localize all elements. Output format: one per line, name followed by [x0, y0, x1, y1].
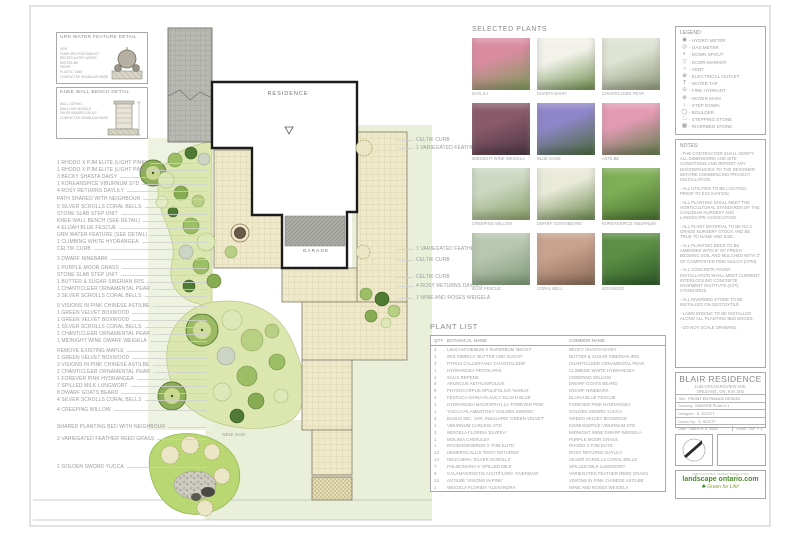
- leader-line: [111, 259, 207, 260]
- logo-tagline: ♣ Green for Life!: [676, 484, 765, 490]
- plant-card: BOXWOOD: [602, 233, 660, 292]
- plant-card: CORAL BELL: [537, 233, 595, 292]
- garage-floor: [285, 216, 345, 246]
- leader-line: [137, 379, 207, 380]
- leader-line: [131, 386, 207, 387]
- legend-item: T - WATER TAP: [680, 80, 761, 87]
- plan-callout: 1 PURPLE MOOR GRASS: [57, 265, 207, 271]
- leader-line: [150, 163, 207, 164]
- plant-list-header: QTY BOTANICAL NAME COMMON NAME: [431, 336, 665, 346]
- table-row: 9 PHYSOCARPUS OPULIFOLIUS 'NANUS' DWARF …: [431, 387, 665, 394]
- north-arrow-box: [675, 434, 713, 466]
- garage-label: GARAGE: [288, 249, 344, 254]
- note-item: - ALL PLANTING BEDS TO BE AMENDED WITH 8…: [680, 243, 761, 264]
- legend-symbol-icon: ◯: [680, 109, 689, 116]
- drawing-sheet: URN WATER FEATURE DETAIL URNPUMP AND FOU…: [0, 0, 800, 533]
- legend-panel: LEGEND: ◉ - HYDRO METER ◎ - GAS METER ◐ …: [675, 26, 766, 135]
- leader-line: [153, 334, 207, 335]
- legend-symbol-icon: ◎: [680, 44, 689, 51]
- legend-symbol-icon: ▽: [680, 59, 689, 66]
- legend-item: ⊙ - FIRE HYDRANT: [680, 87, 761, 94]
- leader-line: [120, 177, 207, 178]
- column-header-common: COMMON NAME: [569, 338, 662, 343]
- legend-item: ◐ - DOWN SPOUT: [680, 51, 761, 58]
- leader-line: [157, 439, 207, 440]
- plan-callout: CELTIK CURB: [57, 246, 207, 252]
- legend-item: ◉ - HYDRO METER: [680, 37, 761, 44]
- selected-plants-grid: DAYLILY SHASTA DAISY CHANTICLEER PEAR MI…: [472, 38, 666, 292]
- leader-line: [121, 275, 207, 276]
- leader-line: [398, 148, 413, 149]
- plan-callout: 3 VARIEGATED FEATHER REED GRASS: [57, 436, 207, 442]
- plant-photo: [537, 168, 595, 220]
- table-row: 1 VIBURNUM CARLESII STD KOREANSPICE VIBU…: [431, 422, 665, 429]
- legend-symbol-icon: ↓: [680, 102, 689, 109]
- plan-callout: 1 GREEN VELVET BOXWOOD: [57, 317, 207, 323]
- plant-photo-label: ASTILBE: [602, 155, 660, 162]
- date-label: Date:: [678, 426, 687, 431]
- scale-label: Scale:: [736, 426, 747, 431]
- project-name: BLAIR RESIDENCE: [676, 373, 765, 384]
- notes-title: NOTES:: [680, 143, 761, 149]
- plan-callout: 8 DWARF GOATS BEARD: [57, 390, 207, 396]
- plant-photo-label: KOREANSPICE VIBURNUM: [602, 220, 660, 227]
- plan-callout: 4 ROSY RETURNS DAYLILY: [57, 188, 207, 194]
- leader-line: [132, 313, 207, 314]
- plan-callout: 1 GREEN VELVET BOXWOOD: [57, 310, 207, 316]
- plan-callout: 3 BECKY SHASTA DAISY: [57, 174, 207, 180]
- legend-symbol-icon: □: [680, 116, 689, 123]
- note-item: - ALL UTILITIES TO BE LOCATED PRIOR TO E…: [680, 186, 761, 196]
- leader-line: [398, 277, 413, 278]
- plan-callout: 1 CHANTICLEER ORNAMENTAL PEAR: [57, 369, 207, 375]
- plan-callout: 3 DWARF NINEBARK: [57, 256, 207, 262]
- plan-callout: 7 SPILLED MILK LUNGWORT: [57, 383, 207, 389]
- table-row: 1 MOLINIA CAERULEA PURPLE MOOR GRASS: [431, 436, 665, 443]
- leader-line: [114, 410, 207, 411]
- legend-symbol-icon: ⊕: [680, 73, 689, 80]
- title-block-rows: Title: FRONT ENTRANCE DESIGN Drawing: MA…: [676, 394, 765, 424]
- table-row: 14 HEUCHERA 'SILVER SCROLLS' SILVER SCRO…: [431, 456, 665, 463]
- plan-callout: URN WATER FEATURE (SEE DETAIL): [57, 232, 207, 238]
- table-row: 3 WEIGELA FLORIDA 'ELVERA' MIDNIGHT WINE…: [431, 429, 665, 436]
- table-row: 1 HYDRANGEA MACROPHYLLA 'FOREVER PINK' F…: [431, 401, 665, 408]
- leader-line: [153, 306, 208, 307]
- legend-items: ◉ - HYDRO METER ◎ - GAS METER ◐ - DOWN S…: [680, 37, 761, 130]
- plant-photo: [472, 233, 530, 285]
- plan-callout: 1 WINE AND ROSES WEIGELA: [398, 295, 523, 301]
- note-item: - LAWN EDGING TO BE INSTALLED ALONG ALL …: [680, 311, 761, 321]
- table-row: 1 HYDRANGEA PETIOLARIS CLIMBING WHITE HY…: [431, 367, 665, 374]
- leader-line: [145, 296, 207, 297]
- plan-callout: KNEE WALL BENCH (SEE DETAIL): [57, 218, 207, 224]
- leader-line: [145, 327, 207, 328]
- notes-panel: NOTES: - THE CONTRACTOR SHALL VERIFY ALL…: [675, 139, 766, 368]
- legend-item: ○ - VENT: [680, 66, 761, 73]
- notes-list: - THE CONTRACTOR SHALL VERIFY ALL DIMENS…: [680, 151, 761, 330]
- plant-card: DAYLILY: [472, 38, 530, 97]
- plant-photo-label: BLUE FESCUE: [472, 285, 530, 292]
- leader-line: [398, 260, 413, 261]
- plan-callout: 1 FOREVER PINK HYDRANGEA: [57, 376, 207, 382]
- plan-callout: 1 SILVER SCROLLS CORAL BELLS: [57, 324, 207, 330]
- plant-photo-label: DAYLILY: [472, 90, 530, 97]
- scale-value: 1/4" = 1': [749, 426, 763, 431]
- leader-line: [150, 341, 207, 342]
- note-item: - ALL RIVERBED STONE TO BE INSTALLED ON …: [680, 297, 761, 307]
- plant-photo-label: CREEPING WILLOW: [472, 220, 530, 227]
- legend-symbol-icon: ⊗: [680, 95, 689, 102]
- leader-line: [121, 393, 207, 394]
- table-row: 1 IRIS SIBIRICA 'BUTTER AND SUGAR' BUTTE…: [431, 353, 665, 360]
- leader-line: [153, 372, 207, 373]
- legend-item: ⊕ - ELECTRICAL OUTLET: [680, 73, 761, 80]
- plant-photo-label: CORAL BELL: [537, 285, 595, 292]
- title-block-row: Title: FRONT ENTRANCE DESIGN: [676, 394, 765, 402]
- new-sod-label: NEW SOD: [222, 433, 245, 438]
- legend-item: ⊗ - WATER MAIN: [680, 95, 761, 102]
- table-row: 3 PYRUS CALLERYANA 'CHANTICLEER' CHANTIC…: [431, 360, 665, 367]
- note-item: - ALL PLANT MATERIAL TO BE NO.1 GRADE NU…: [680, 224, 761, 240]
- plant-list-rows: 3 LEUCANTHEMUM X SUPERBUM 'BECKY' BECKY …: [431, 346, 665, 491]
- leader-line: [398, 298, 413, 299]
- legend-symbol-icon: ○: [680, 66, 689, 73]
- plant-card: MIDNIGHT WINE WEIGELA: [472, 103, 530, 162]
- mosaic-paver-pad: [312, 477, 352, 500]
- table-row: 4 SALIX REPENS CREEPING WILLOW: [431, 374, 665, 381]
- legend-symbol-icon: ⊙: [680, 87, 689, 94]
- leader-line: [153, 365, 208, 366]
- plant-card: KOREANSPICE VIBURNUM: [602, 168, 660, 227]
- leader-line: [142, 184, 207, 185]
- plant-photo: [472, 168, 530, 220]
- leader-line: [145, 400, 207, 401]
- plant-photo-label: BLUE SAGE: [537, 155, 595, 162]
- table-row: 8 ARUNCUS AETHUSIFOLIUS DWARF GOATS BEAR…: [431, 380, 665, 387]
- plan-callout: 1 CHANTICLEER ORNAMENTAL PEAR: [57, 331, 207, 337]
- note-item: - THE CONTRACTOR SHALL VERIFY ALL DIMENS…: [680, 151, 761, 182]
- plan-callout: SHARED PLANTING BED WITH NEIGHBOUR: [57, 424, 207, 430]
- plant-photo: [537, 38, 595, 90]
- plan-callout: 1 KOREANSPICE VIBURNUM STD: [57, 181, 207, 187]
- plant-card: BLUE FESCUE: [472, 233, 530, 292]
- residence-label: RESIDENCE: [258, 91, 318, 97]
- leader-line: [143, 221, 207, 222]
- leader-line: [127, 191, 207, 192]
- plan-callout: 3 VISIONS IN PINK CHINESE ASTILBE: [57, 362, 207, 368]
- plant-photo: [602, 38, 660, 90]
- plant-card: BLUE SAGE: [537, 103, 595, 162]
- note-item: - ALL PLANTING SHALL MEET THE HORTICULTU…: [680, 200, 761, 221]
- table-row: 3 BUXUS MIC. VAR. INSULARIS 'GREEN VELVE…: [431, 415, 665, 422]
- leader-line: [150, 235, 207, 236]
- tree-icon: ♣: [702, 484, 706, 490]
- plant-card: SHASTA DAISY: [537, 38, 595, 97]
- plant-photo-label: CHANTICLEER PEAR: [602, 90, 660, 97]
- leader-line: [94, 249, 207, 250]
- title-block: BLAIR RESIDENCE 1155 ORCHARDVIEW AVE. OR…: [675, 372, 766, 428]
- leader-line: [121, 214, 207, 215]
- plan-callout: 1 MIDNIGHT WINE DWARF WEIGELA: [57, 338, 207, 344]
- plant-card: DWARF GOATSBEARD: [537, 168, 595, 227]
- plan-callout: 4 ELIJAH BLUE FESCUE: [57, 225, 207, 231]
- plan-callout: 9 VISIONS IN PINK CHINESE ASTILBE: [57, 303, 207, 309]
- leader-line: [142, 242, 208, 243]
- plant-card: CHANTICLEER PEAR: [602, 38, 660, 97]
- leader-line: [119, 228, 207, 229]
- legend-symbol-icon: ▦: [680, 123, 689, 130]
- plan-callout: PATH SHARED WITH NEIGHBOUR: [57, 196, 207, 202]
- plan-callout: 4 SILVER SCROLLS CORAL BELLS: [57, 397, 207, 403]
- plant-list-title: PLANT LIST: [430, 322, 666, 331]
- north-arrow-icon: [676, 435, 712, 465]
- title-block-row: Drawn By: S. SCOTT: [676, 417, 765, 425]
- table-row: 1 WEIGELA FLORIDA 'ALEXANDRA' WINE AND R…: [431, 484, 665, 491]
- logo-box: HORTICULTURAL TRADES ASSOCIATION landsca…: [675, 470, 766, 499]
- note-item: - ALL CONCRETE PAVER INSTALLATION SHALL …: [680, 267, 761, 293]
- plant-photo: [472, 103, 530, 155]
- table-row: 12 ASTILBE 'VISIONS IN PINK' VISIONS IN …: [431, 477, 665, 484]
- date-value: MARCH 5, 2009: [689, 426, 717, 431]
- legend-item: ▽ - DOOR MARKER: [680, 59, 761, 66]
- revision-box: [717, 434, 766, 466]
- legend-symbol-icon: ◐: [680, 51, 689, 58]
- leader-line: [168, 427, 207, 428]
- legend-item: □ - STEPPING STONE: [680, 116, 761, 123]
- plan-callout: 1 GOLDEN SWORD YUCCA: [57, 464, 207, 470]
- plant-photo-label: SHASTA DAISY: [537, 90, 595, 97]
- legend-symbol-icon: ◉: [680, 37, 689, 44]
- plan-callout: 1 CLIMBING WHITE HYDRANGEA: [57, 239, 207, 245]
- legend-item: ◯ - BOULDER: [680, 109, 761, 116]
- column-header-qty: QTY: [434, 338, 447, 343]
- plan-callout: 1 BUTTER & SUGAR SIBERIAN IRIS: [57, 279, 207, 285]
- table-row: 4 FESTUCA OVINA GLAUCA 'ELIJAH BLUE' ELI…: [431, 394, 665, 401]
- leader-line: [398, 249, 413, 250]
- plan-callout: 5 SILVER SCROLLS CORAL BELLS: [57, 204, 207, 210]
- plan-callout: 3 SILVER SCROLLS CORAL BELLS: [57, 293, 207, 299]
- leader-line: [127, 351, 207, 352]
- plan-callout: STONE SLAB STEP UNIT: [57, 272, 207, 278]
- plant-photo: [602, 168, 660, 220]
- plant-card: CREEPING WILLOW: [472, 168, 530, 227]
- plant-list-section: PLANT LIST QTY BOTANICAL NAME COMMON NAM…: [430, 322, 666, 492]
- plant-photo: [602, 233, 660, 285]
- title-block-row: Drawing: MASTER PLAN V.1: [676, 402, 765, 410]
- leader-line: [132, 320, 207, 321]
- plan-callout: 1 RHODO X PJM ELITE (LIGHT PINK): [57, 160, 207, 166]
- plan-callouts-left: 1 RHODO X PJM ELITE (LIGHT PINK) 1 RHODO…: [57, 0, 207, 533]
- table-row: 3 LEUCANTHEMUM X SUPERBUM 'BECKY' BECKY …: [431, 346, 665, 353]
- leader-line: [132, 358, 207, 359]
- plant-photo-label: DWARF GOATSBEARD: [537, 220, 595, 227]
- plant-photo: [537, 103, 595, 155]
- leader-line: [143, 199, 207, 200]
- table-row: 1 RHODODENDRON X 'PJM ELITE' RHODO X PJM…: [431, 442, 665, 449]
- leader-line: [150, 170, 207, 171]
- selected-plants-title: SELECTED PLANTS: [472, 26, 547, 33]
- title-block-date-row: Date: MARCH 5, 2009 Scale: 1/4" = 1': [676, 424, 765, 432]
- leader-line: [147, 282, 207, 283]
- leader-line: [153, 289, 207, 290]
- plant-photo-label: MIDNIGHT WINE WEIGELA: [472, 155, 530, 162]
- plan-callout: 1 RHODO X PJM ELITE (LIGHT PINK): [57, 167, 207, 173]
- plant-list-table: QTY BOTANICAL NAME COMMON NAME 3 LEUCANT…: [430, 335, 666, 492]
- table-row: 1 YUCCA FILAMENTOSA 'GOLDEN SWORD' GOLDE…: [431, 408, 665, 415]
- plant-photo-label: BOXWOOD: [602, 285, 660, 292]
- legend-item: ◎ - GAS METER: [680, 44, 761, 51]
- table-row: 12 HEMEROCALLIS 'ROSY RETURNS' ROSY RETU…: [431, 449, 665, 456]
- note-item: - DO NOT SCALE DRAWING.: [680, 325, 761, 330]
- legend-title: LEGEND:: [680, 30, 761, 36]
- legend-item: ▦ - RIVERBED STONE: [680, 123, 761, 130]
- plant-photo: [602, 103, 660, 155]
- plan-callout: 1 CHANTICLEER ORNAMENTAL PEAR: [57, 286, 207, 292]
- plant-card: ASTILBE: [602, 103, 660, 162]
- plan-callout: STONE SLAB STEP UNIT: [57, 211, 207, 217]
- table-row: 5 CALAMAGROSTIS ACUTIFLORA 'OVERDAM' VAR…: [431, 470, 665, 477]
- landscape-ontario-logo: landscape ontario.com: [676, 476, 765, 484]
- plan-callout: 4 CREEPING WILLOW: [57, 407, 207, 413]
- plant-photo: [472, 38, 530, 90]
- title-block-row: Designer: S. SCOTT: [676, 409, 765, 417]
- plan-callout: 1 GREEN VELVET BOXWOOD: [57, 355, 207, 361]
- plant-photo: [537, 233, 595, 285]
- table-row: 7 PULMONARIA X 'SPILLED MILK' SPILLED MI…: [431, 463, 665, 470]
- leader-line: [398, 140, 413, 141]
- legend-symbol-icon: T: [680, 80, 689, 87]
- leader-line: [122, 268, 207, 269]
- column-header-botanical: BOTANICAL NAME: [447, 338, 569, 343]
- leader-line: [127, 467, 207, 468]
- plan-callout: REMOVE EXISTING MAPLE: [57, 348, 207, 354]
- legend-item: ↓ - STEP DOWN: [680, 102, 761, 109]
- leader-line: [398, 286, 413, 287]
- leader-line: [145, 207, 207, 208]
